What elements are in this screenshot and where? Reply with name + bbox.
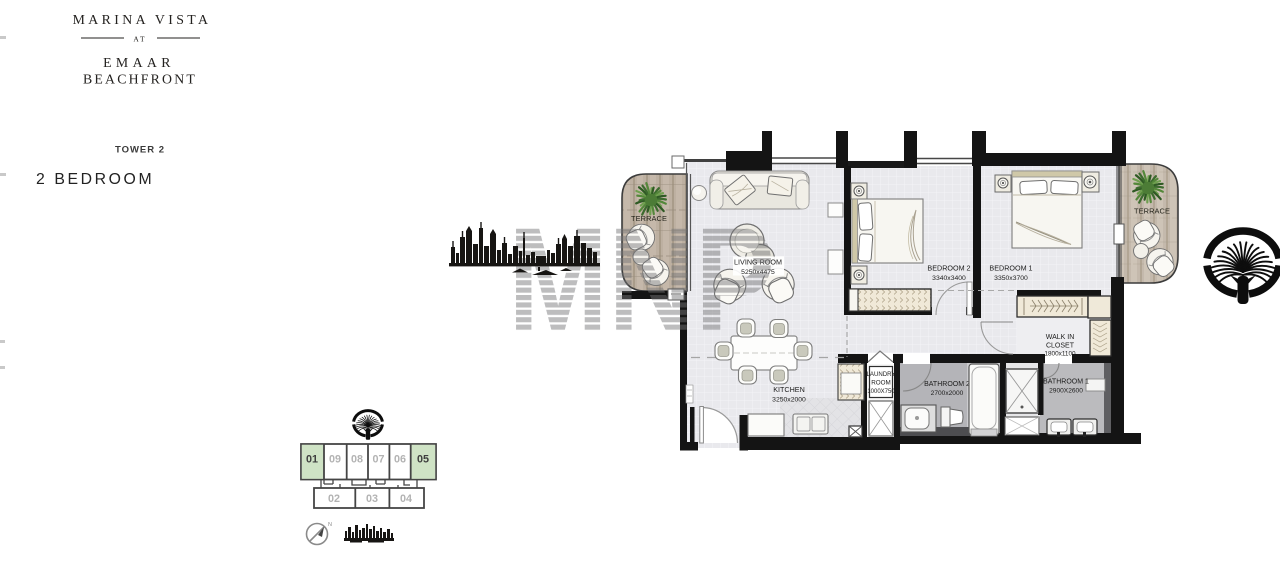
svg-text:BEDROOM 1: BEDROOM 1 xyxy=(989,264,1032,273)
svg-text:1000X750: 1000X750 xyxy=(867,389,895,395)
svg-text:BATHROOM 2: BATHROOM 2 xyxy=(924,381,970,388)
svg-text:AT: AT xyxy=(133,35,146,44)
svg-text:07: 07 xyxy=(372,454,384,466)
svg-text:04: 04 xyxy=(400,493,412,505)
svg-text:N: N xyxy=(328,522,332,528)
svg-text:01: 01 xyxy=(306,454,318,466)
svg-text:BEDROOM 2: BEDROOM 2 xyxy=(927,264,970,273)
svg-text:3340x3400: 3340x3400 xyxy=(932,275,966,282)
svg-text:TOWER 2: TOWER 2 xyxy=(115,145,165,156)
svg-text:06: 06 xyxy=(394,454,406,466)
svg-text:BEACHFRONT: BEACHFRONT xyxy=(83,72,197,87)
svg-text:08: 08 xyxy=(351,454,363,466)
svg-text:03: 03 xyxy=(366,493,378,505)
svg-text:3350x3700: 3350x3700 xyxy=(994,275,1028,282)
svg-text:BATHROOM 1: BATHROOM 1 xyxy=(1043,379,1089,386)
svg-text:WALK IN: WALK IN xyxy=(1046,334,1075,341)
svg-text:05: 05 xyxy=(417,454,429,466)
svg-text:09: 09 xyxy=(329,454,341,466)
svg-text:1800x1100: 1800x1100 xyxy=(1044,351,1076,358)
svg-text:TERRACE: TERRACE xyxy=(1134,207,1170,216)
svg-text:ROOM: ROOM xyxy=(871,380,891,387)
svg-text:2900X2600: 2900X2600 xyxy=(1049,388,1083,395)
svg-text:CLOSET: CLOSET xyxy=(1046,343,1075,350)
svg-text:EMAAR: EMAAR xyxy=(103,55,175,70)
svg-text:MNP: MNP xyxy=(508,198,775,365)
svg-text:MARINA VISTA: MARINA VISTA xyxy=(73,12,212,27)
svg-text:02: 02 xyxy=(328,493,340,505)
svg-text:2 BEDROOM: 2 BEDROOM xyxy=(36,171,154,188)
svg-text:2700x2000: 2700x2000 xyxy=(931,390,964,397)
svg-text:KITCHEN: KITCHEN xyxy=(773,385,805,394)
svg-text:LAUNDRY: LAUNDRY xyxy=(866,371,895,378)
svg-text:3250x2000: 3250x2000 xyxy=(772,397,806,404)
